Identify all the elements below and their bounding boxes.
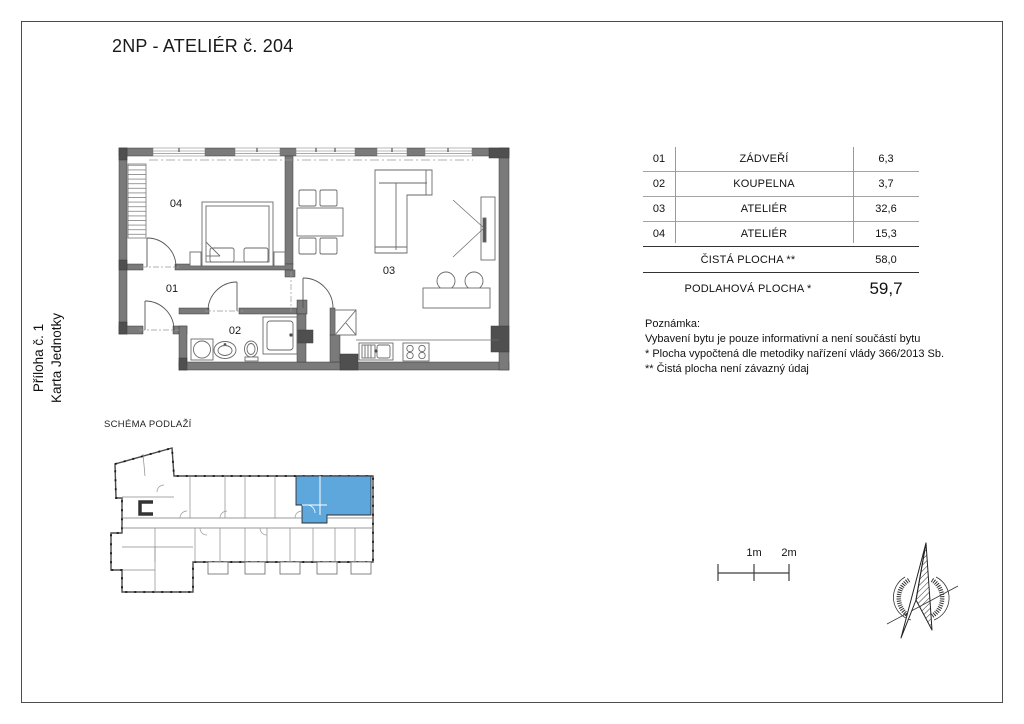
room-name: ATELIÉR (675, 228, 853, 240)
scale-label-2m: 2m (781, 547, 796, 559)
room-name: ZÁDVEŘÍ (675, 153, 853, 165)
room-label-02: 02 (229, 325, 241, 337)
table-total-floor: PODLAHOVÁ PLOCHA * 59,7 (643, 273, 919, 305)
area-table: 01 ZÁDVEŘÍ 6,3 02 KOUPELNA 3,7 03 ATELIÉ… (643, 147, 919, 305)
table-row: 01 ZÁDVEŘÍ 6,3 (643, 147, 919, 172)
bed (202, 202, 273, 266)
sofa (375, 170, 432, 253)
area-table-rooms: 01 ZÁDVEŘÍ 6,3 02 KOUPELNA 3,7 03 ATELIÉ… (643, 147, 919, 247)
page-title: 2NP - ATELIÉR č. 204 (112, 36, 293, 57)
door-01-04 (141, 238, 179, 267)
schema-label: SCHÉMA PODLAŽÍ (104, 419, 192, 430)
bathroom-fixtures (191, 317, 297, 361)
room-number: 02 (643, 178, 675, 190)
table-divider (853, 147, 854, 243)
floor-schema (95, 442, 385, 604)
sidebar-line-1: Příloha č. 1 (30, 313, 48, 403)
entry-door (139, 301, 179, 330)
plan-walls (119, 148, 509, 370)
room-label-01: 01 (166, 283, 178, 295)
door-01-02 (205, 282, 243, 311)
notes-line: ** Čistá plocha není závazný údaj (645, 362, 944, 377)
table-row: 04 ATELIÉR 15,3 (643, 222, 919, 247)
room-name: ATELIÉR (675, 203, 853, 215)
floor-plan-drawing: 04 01 02 03 (113, 140, 523, 380)
notes-heading: Poznámka: (645, 317, 944, 332)
scale-label-1m: 1m (746, 547, 761, 559)
room-label-03: 03 (383, 265, 395, 277)
table-divider (675, 147, 676, 243)
room-number: 04 (643, 228, 675, 240)
notes-line: Vybavení bytu je pouze informativní a ne… (645, 332, 944, 347)
room-area: 3,7 (853, 178, 919, 190)
room-area: 15,3 (853, 228, 919, 240)
unit-card-sheet: { "page": { "title": "2NP - ATELIÉR č. 2… (0, 0, 1024, 724)
scale-bar: 1m 2m (713, 542, 803, 587)
tv (453, 197, 495, 260)
table-total-net: ČISTÁ PLOCHA ** 58,0 (643, 247, 919, 273)
table-row: 03 ATELIÉR 32,6 (643, 197, 919, 222)
total-label: ČISTÁ PLOCHA ** (643, 254, 853, 266)
radiator (128, 164, 146, 238)
nightstand-left (190, 252, 201, 266)
balconies (208, 562, 371, 574)
room-area: 32,6 (853, 203, 919, 215)
total-value: 58,0 (853, 254, 919, 266)
north-arrow-icon (885, 540, 960, 650)
room-area: 6,3 (853, 153, 919, 165)
kitchen (356, 340, 499, 361)
room-label-04: 04 (170, 198, 182, 210)
total-value: 59,7 (853, 279, 919, 299)
room-name: KOUPELNA (675, 178, 853, 190)
sidebar-vertical-text: Příloha č. 1 Karta Jednotky (30, 313, 66, 403)
nightstand-right (274, 252, 285, 266)
dining-set (297, 190, 343, 254)
sidebar-line-2: Karta Jednotky (48, 313, 66, 403)
notes-block: Poznámka: Vybavení bytu je pouze informa… (645, 317, 944, 377)
room-number: 03 (643, 203, 675, 215)
room-number: 01 (643, 153, 675, 165)
notes-line: * Plocha vypočtená dle metodiky nařízení… (645, 347, 944, 362)
shower (263, 317, 297, 354)
table-row: 02 KOUPELNA 3,7 (643, 172, 919, 197)
installation-shaft (335, 310, 356, 335)
bar-island (423, 272, 490, 308)
total-label: PODLAHOVÁ PLOCHA * (643, 283, 853, 295)
